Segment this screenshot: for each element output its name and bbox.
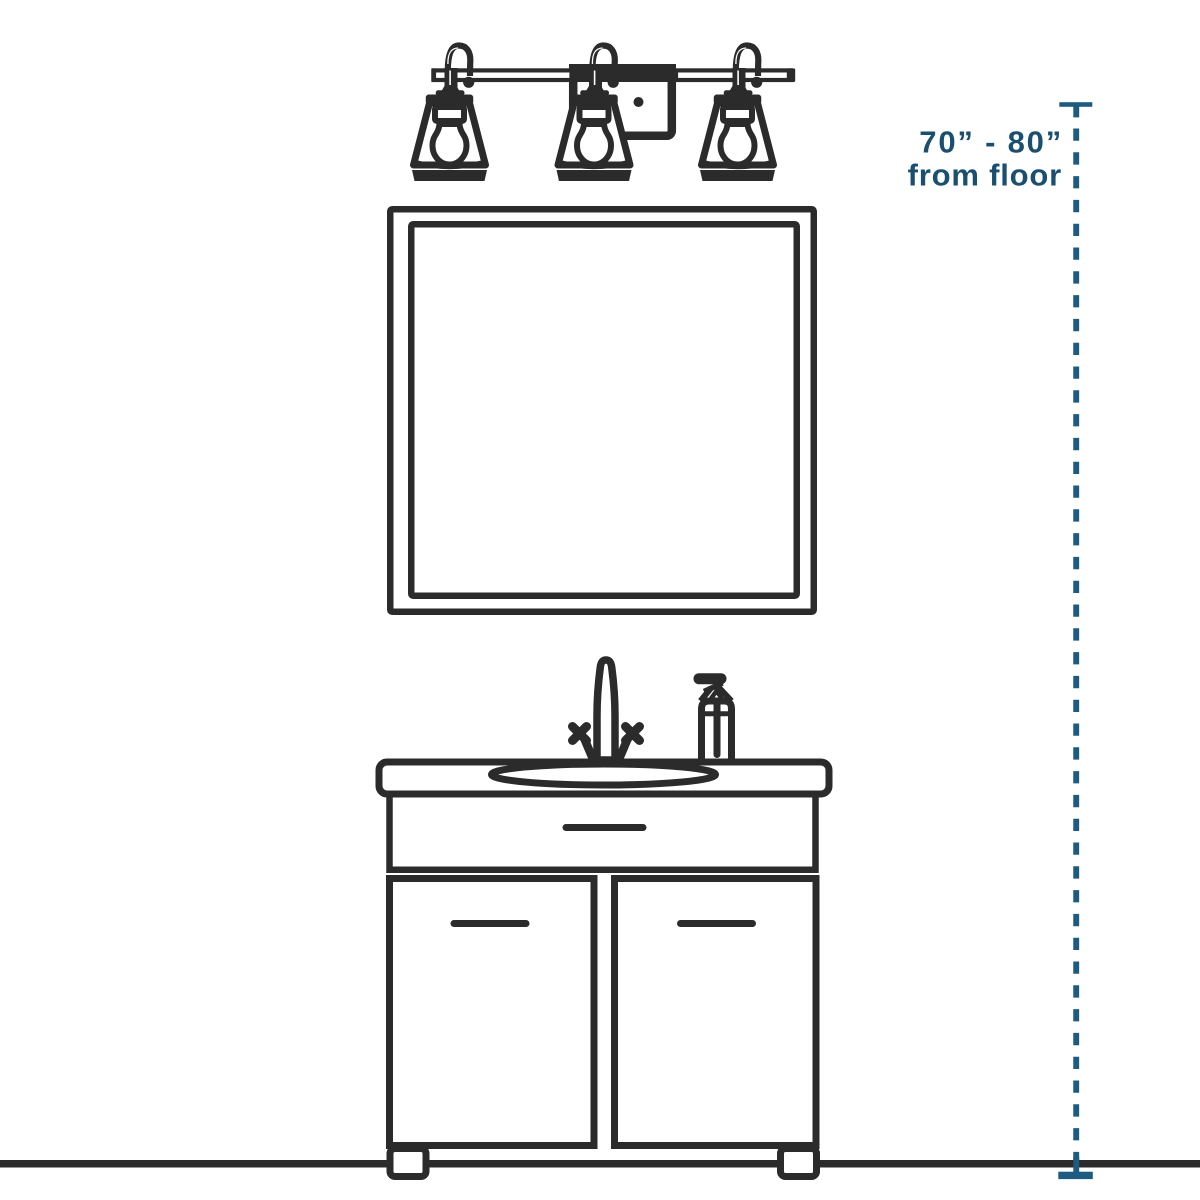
svg-text:70” - 80”: 70” - 80” [919, 124, 1063, 159]
svg-text:from floor: from floor [908, 157, 1062, 192]
